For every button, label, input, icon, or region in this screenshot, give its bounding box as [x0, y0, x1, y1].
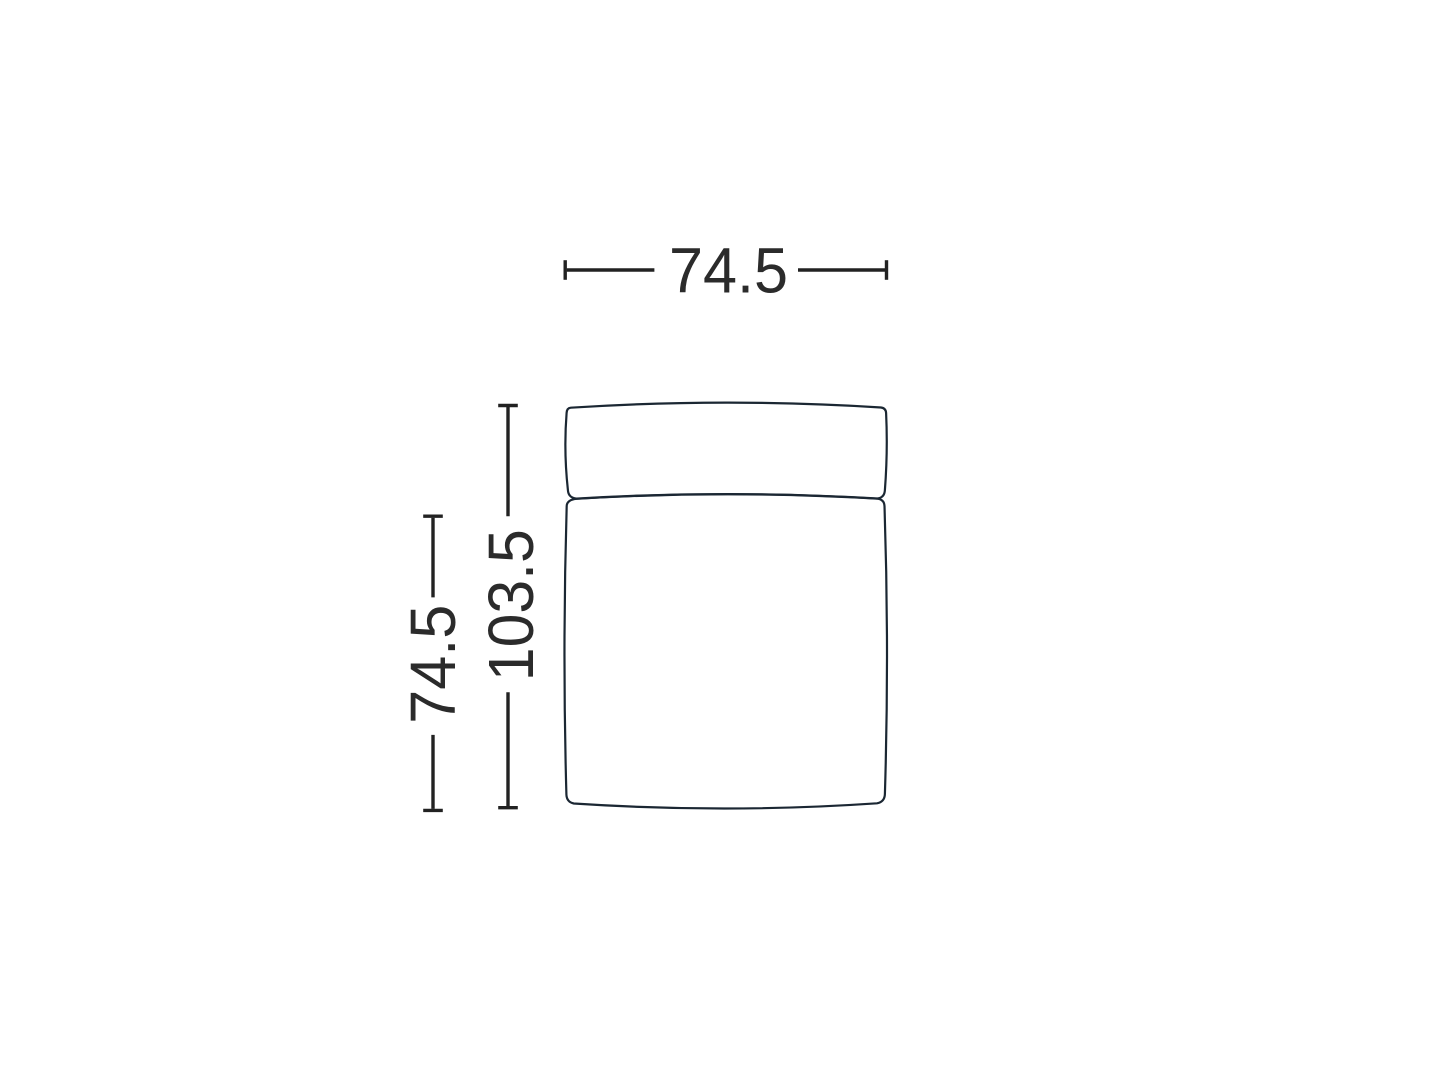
svg-text:103.5: 103.5: [475, 529, 547, 681]
svg-text:74.5: 74.5: [669, 235, 788, 307]
svg-text:74.5: 74.5: [397, 605, 469, 724]
